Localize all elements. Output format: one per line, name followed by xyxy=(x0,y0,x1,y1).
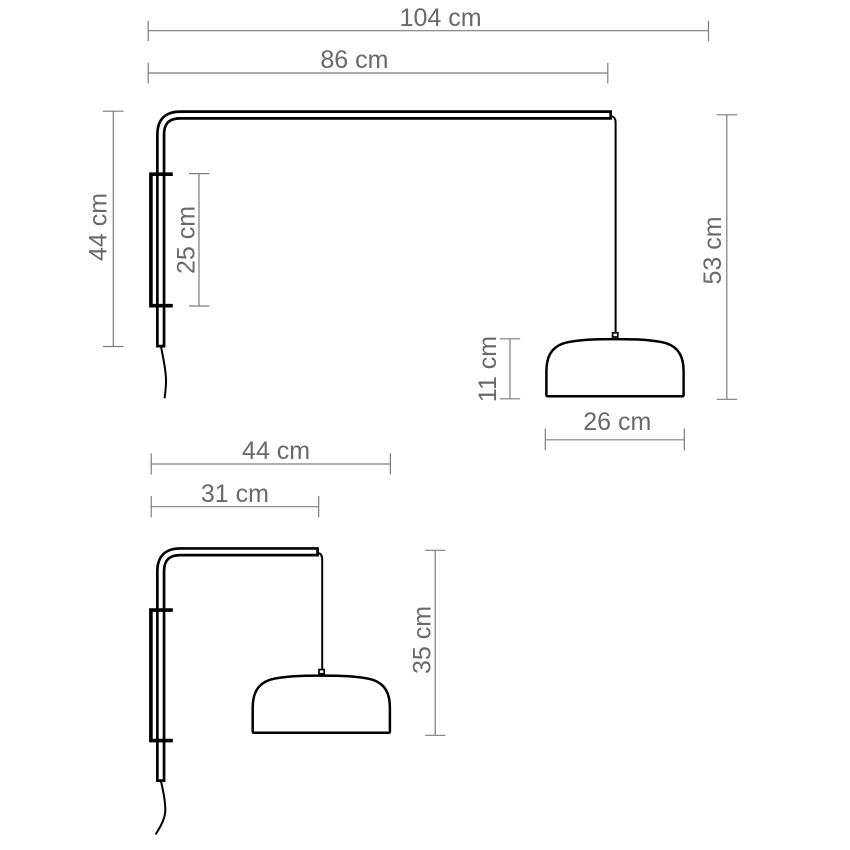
svg-text:25 cm: 25 cm xyxy=(173,206,201,274)
svg-text:35 cm: 35 cm xyxy=(409,606,437,674)
svg-text:26 cm: 26 cm xyxy=(583,408,651,436)
svg-text:104 cm: 104 cm xyxy=(400,4,482,32)
svg-text:44 cm: 44 cm xyxy=(242,437,310,465)
svg-text:86 cm: 86 cm xyxy=(320,46,388,74)
svg-text:44 cm: 44 cm xyxy=(85,193,113,261)
svg-text:53 cm: 53 cm xyxy=(699,216,727,284)
svg-text:11 cm: 11 cm xyxy=(474,336,502,402)
svg-text:31 cm: 31 cm xyxy=(201,480,269,508)
